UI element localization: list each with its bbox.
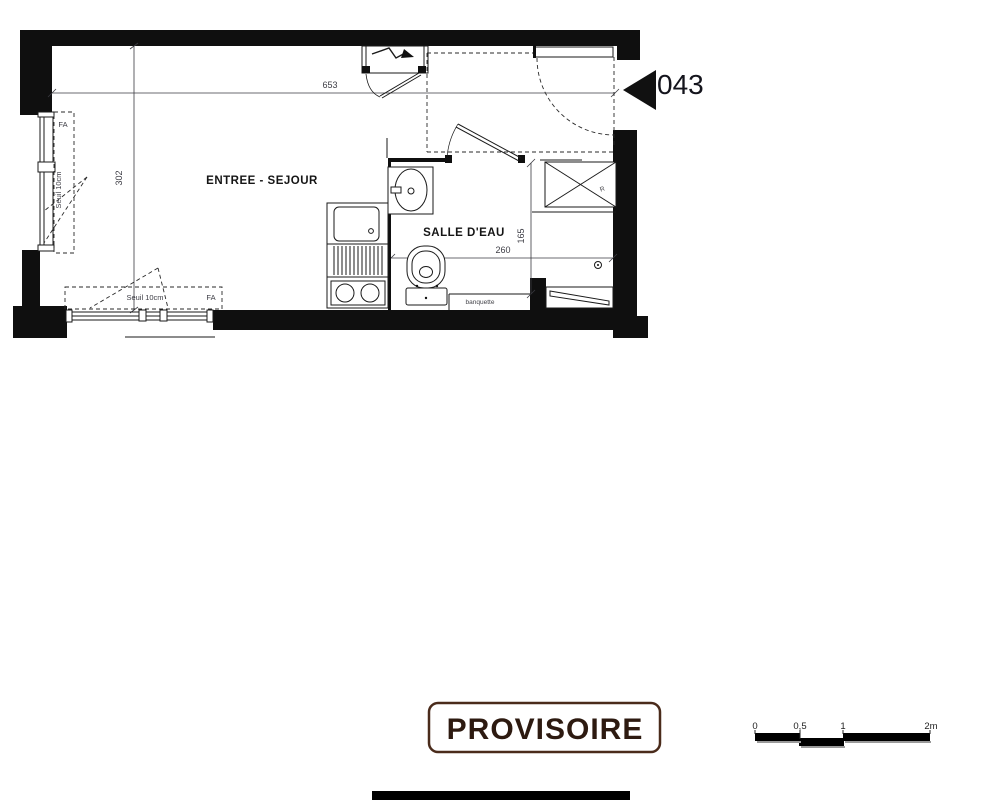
- dim-bath-depth: 165: [516, 228, 526, 243]
- entrance-door-swing: [537, 58, 614, 135]
- scale-label-2m: 2m: [924, 721, 937, 732]
- bathroom-label: SALLE D'EAU: [423, 227, 505, 239]
- living-room-label: ENTREE - SEJOUR: [206, 175, 318, 187]
- scale-label-0: 0: [752, 721, 757, 732]
- sink-icon: [334, 207, 379, 241]
- bench-label: banquette: [466, 299, 495, 306]
- entry-zone-boundary: [427, 53, 616, 152]
- shower-duct-icon: R: [540, 160, 616, 207]
- bench: banquette: [449, 294, 531, 310]
- left-window: FA Seuil 10cm: [38, 112, 87, 253]
- unit-badge: 043: [623, 69, 704, 110]
- stamp-label: PROVISOIRE: [447, 713, 644, 746]
- floor-plan-drawing: 653 302 260 165 FA Seuil 10cm: [0, 0, 989, 800]
- bottom-window-sill-label: Seuil 10cm: [126, 293, 163, 302]
- bathroom-partition: [387, 138, 525, 310]
- dim-total-width: 653: [322, 80, 337, 90]
- wall-recess-vent: [546, 287, 613, 308]
- scale-bar: 0 0,5 1 2m: [752, 721, 937, 748]
- scale-label-1: 1: [840, 721, 845, 732]
- bottom-window: Seuil 10cm FA: [65, 268, 222, 337]
- bathroom-door-swing: [447, 124, 458, 158]
- entrance-arrow-icon: [623, 70, 656, 110]
- dim-total-height: 302: [114, 170, 124, 185]
- floor-drain-icon: [595, 262, 602, 269]
- bathroom-door: [447, 124, 521, 161]
- kitchenette: [327, 203, 388, 308]
- bottom-edge-strip: [372, 791, 630, 800]
- dim-bath-width: 260: [495, 245, 510, 255]
- left-window-type-label: FA: [58, 120, 67, 129]
- scale-label-05: 0,5: [793, 721, 806, 732]
- unit-number-label: 043: [657, 69, 704, 100]
- washbasin-icon: [388, 167, 433, 214]
- electrical-niche: [362, 46, 428, 98]
- entrance-door: [533, 46, 614, 135]
- floor-plan-page: 653 302 260 165 FA Seuil 10cm: [0, 0, 989, 800]
- provisional-stamp: PROVISOIRE: [429, 703, 660, 752]
- toilet-icon: [406, 246, 447, 305]
- left-window-sill-label: Seuil 10cm: [54, 171, 63, 208]
- niche-door-swing: [366, 73, 421, 98]
- bottom-window-type-label: FA: [206, 293, 215, 302]
